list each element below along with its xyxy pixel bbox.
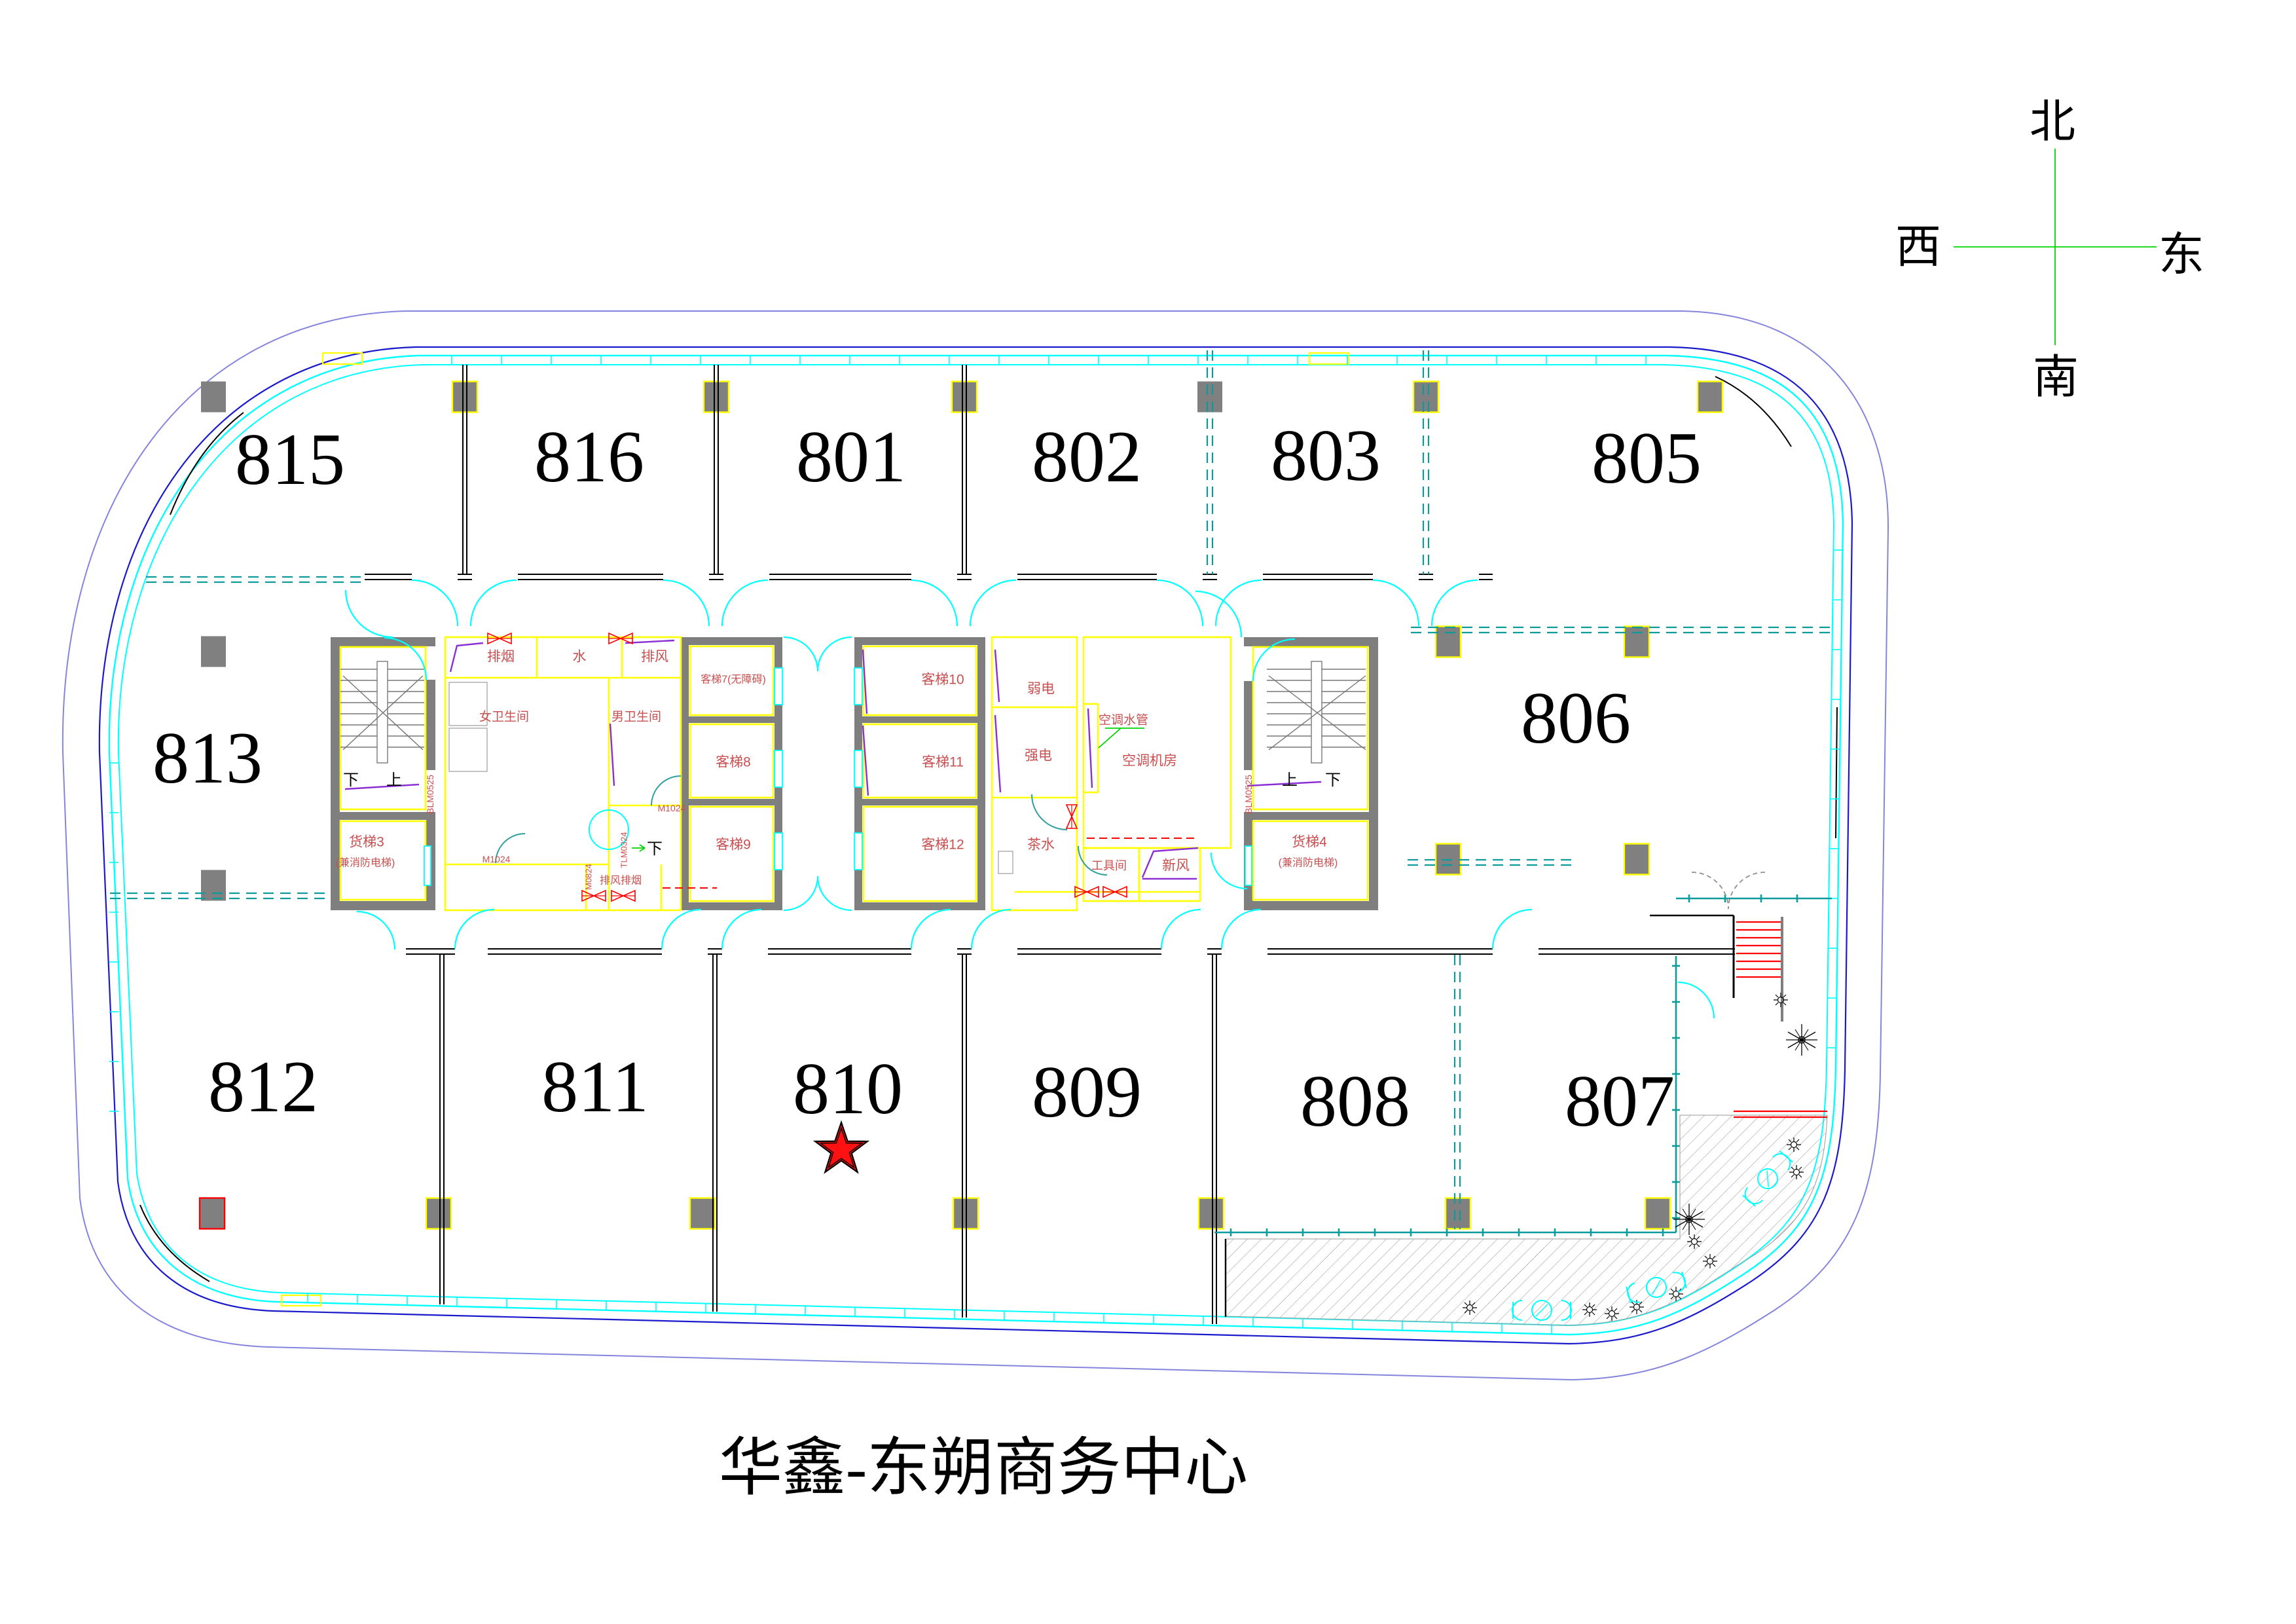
drawing-title: 华鑫-东朔商务中心 (719, 1433, 1248, 1504)
room-label-805: 805 (1592, 418, 1702, 499)
stair-direction-labels: 下上上下下 (343, 771, 1341, 858)
room-label-807: 807 (1565, 1061, 1675, 1142)
fire-damper-icon (1075, 887, 1099, 897)
column (704, 382, 729, 413)
core-label: BLM0525 (425, 775, 435, 814)
room-number-labels: 8158168018028038058138068128118108098088… (153, 415, 1702, 1142)
column (690, 1198, 715, 1229)
room-label-811: 811 (541, 1046, 649, 1128)
column (1624, 844, 1649, 875)
room-label-812: 812 (208, 1046, 318, 1128)
core-label: 货梯3 (349, 835, 384, 850)
core-label: 客梯10 (921, 673, 964, 688)
column (452, 382, 477, 413)
tree-icon (1786, 1024, 1817, 1056)
room-label-813: 813 (153, 718, 263, 799)
stair-direction-label: 下 (343, 772, 359, 789)
core-room-labels: 排烟水排风女卫生间男卫生间客梯7(无障碍)客梯8客梯9客梯10客梯11客梯12弱… (336, 650, 1338, 890)
compass-south-label: 南 (2033, 353, 2079, 403)
door-swings-cyan (346, 580, 1714, 1018)
fire-damper-icons (488, 633, 1127, 901)
floor-plan-page: 8158168018028038058138068128118108098088… (0, 0, 2296, 1624)
core-label: 空调水管 (1099, 713, 1148, 728)
core-label: 男卫生间 (611, 710, 661, 724)
fire-damper-icon (488, 633, 511, 644)
room-label-803: 803 (1271, 415, 1381, 496)
core-label: 客梯9 (716, 838, 751, 853)
floor-plan-drawing: 8158168018028038058138068128118108098088… (0, 0, 2296, 1624)
core-label: 水 (573, 650, 587, 665)
core-label: 客梯7(无障碍) (701, 674, 766, 686)
stair-direction-label: 下 (1325, 772, 1341, 789)
elevator-door-slots (424, 668, 1252, 885)
column (201, 637, 226, 667)
core-label: 空调机房 (1122, 754, 1177, 769)
column (201, 382, 226, 413)
core-label: 新风 (1162, 858, 1190, 874)
room-label-816: 816 (534, 416, 644, 498)
core-label: 排烟 (487, 650, 515, 665)
leader-lines (632, 728, 1144, 851)
door-swings-teal (496, 776, 1107, 875)
core-label: 排风排烟 (600, 875, 642, 887)
corner-wall-segments (140, 377, 1837, 1282)
column (200, 1198, 225, 1229)
room-label-806: 806 (1521, 678, 1631, 759)
core-label: BLM0525 (1243, 775, 1254, 814)
room-label-808: 808 (1300, 1061, 1410, 1142)
location-star-icon (815, 1122, 867, 1172)
compass-west-label: 西 (1895, 223, 1941, 273)
compass-north-label: 北 (2030, 98, 2075, 148)
core-label: 女卫生间 (479, 710, 529, 724)
core-label: 货梯4 (1292, 835, 1327, 850)
compass-east-label: 东 (2159, 231, 2204, 281)
terrace-hatch (1226, 1115, 1827, 1325)
fire-damper-icon (611, 891, 635, 901)
core-label: 客梯11 (922, 755, 964, 770)
column (952, 382, 977, 413)
core-label: 客梯8 (716, 755, 751, 770)
fire-damper-icon (1103, 887, 1127, 897)
exterior-stair (1736, 922, 1782, 977)
fire-damper-icon (582, 891, 606, 901)
fire-damper-icon (609, 633, 632, 644)
column (1199, 1198, 1224, 1229)
column (1645, 1198, 1670, 1229)
core-label: (兼消防电梯) (1279, 857, 1338, 869)
compass-rose: 北 南 西 东 (1895, 98, 2204, 403)
core-label: 工具间 (1091, 859, 1127, 872)
door-swings-dashed (1692, 872, 1765, 909)
core-label: (兼消防电梯) (336, 857, 395, 869)
column (1446, 1198, 1470, 1229)
core-label: 茶水 (1027, 838, 1055, 853)
column (1413, 382, 1438, 413)
fire-damper-icon (1066, 805, 1077, 828)
core-label: M1024 (483, 854, 511, 864)
column (1197, 382, 1222, 413)
core-label: 弱电 (1027, 682, 1055, 697)
room-label-810: 810 (793, 1048, 903, 1130)
room-label-815: 815 (235, 419, 345, 500)
stair-direction-label: 下 (647, 841, 663, 858)
core-label: 排风 (641, 650, 668, 665)
column (1436, 627, 1461, 657)
column (1624, 627, 1649, 657)
column (201, 870, 226, 901)
room-label-809: 809 (1032, 1052, 1142, 1133)
stair-direction-label: 上 (386, 771, 402, 789)
room-label-802: 802 (1032, 416, 1142, 498)
core-label: M0824 (584, 864, 594, 890)
room-label-801: 801 (796, 416, 906, 498)
column (1698, 382, 1722, 413)
core-label: 强电 (1025, 748, 1052, 764)
service-core (331, 580, 1765, 1018)
core-label: 客梯12 (921, 838, 964, 853)
core-label: M1024 (658, 803, 686, 813)
column (426, 1198, 451, 1229)
stair-direction-label: 上 (1282, 771, 1298, 789)
core-label: TLM0324 (619, 832, 629, 868)
